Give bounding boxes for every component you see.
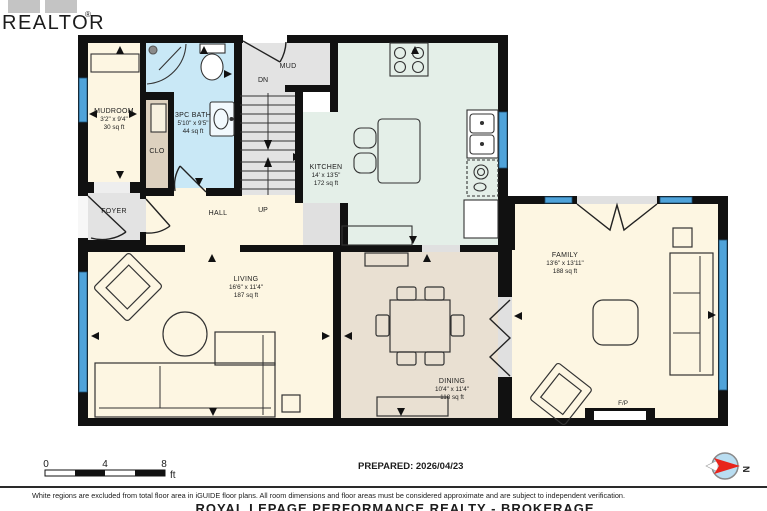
family-dims: 13'6" x 13'11" [546, 260, 584, 267]
family-window-right [719, 240, 727, 390]
kitchen-area: 172 sq ft [314, 180, 338, 187]
family-window-top-left [545, 197, 572, 203]
hall-living-opening [185, 245, 240, 252]
family-area: 188 sq ft [553, 268, 577, 275]
foyer-hall-opening [140, 199, 146, 232]
mudroom-area: 30 sq ft [104, 124, 125, 131]
compass-icon: N [706, 453, 751, 479]
kitchen-label: KITCHEN [310, 164, 343, 171]
bath-label: 3PC BATH [175, 112, 211, 119]
room-family-floor [512, 204, 718, 418]
scale-bar-segment [135, 470, 165, 476]
sink-drain-icon [481, 143, 484, 146]
scale-tick-4: 4 [102, 459, 108, 470]
living-area: 187 sq ft [234, 292, 258, 299]
living-window [79, 272, 87, 392]
compass-north-label: N [741, 466, 751, 473]
dining-dims: 10'4" x 11'4" [435, 386, 469, 393]
refrigerator-symbol [464, 200, 498, 238]
stairs-down-label: DN [258, 77, 268, 84]
family-label: FAMILY [552, 252, 578, 259]
toilet-bowl [201, 54, 223, 80]
brokerage-watermark: ROYAL LEPAGE PERFORMANCE REALTY - BROKER… [195, 501, 594, 511]
shower-head-icon [149, 46, 157, 54]
mudroom-window [79, 78, 87, 122]
closet-label: CLO [149, 148, 165, 155]
room-hall-floor [146, 195, 303, 245]
fireplace-label: F/P [618, 400, 628, 407]
scale-tick-8: 8 [161, 459, 167, 470]
sink-counter [467, 110, 498, 158]
stairs-up-label: UP [258, 207, 268, 214]
scale-bar-segment [75, 470, 105, 476]
footer-divider [0, 486, 767, 488]
fireplace [585, 408, 655, 426]
bath-area: 44 sq ft [183, 128, 204, 135]
kitchen-dims: 14' x 13'5" [312, 172, 341, 179]
registered-mark: ® [85, 10, 91, 19]
bath-door-opening [174, 188, 206, 196]
mud-door-opening [243, 35, 287, 43]
entry-door-opening [78, 196, 88, 238]
kitchen-dining-opening [422, 245, 460, 252]
living-label: LIVING [234, 276, 259, 283]
bath-dims: 5'10" x 9'5" [177, 120, 208, 127]
room-living-floor [88, 252, 333, 418]
living-dims: 16'6" x 11'4" [229, 284, 263, 291]
dining-area: 118 sq ft [440, 394, 464, 401]
stair-landing-floor [303, 203, 340, 245]
scale-tick-0: 0 [43, 459, 49, 470]
room-dining-floor [341, 252, 498, 418]
scale-bar: 0 4 8 ft [43, 459, 176, 481]
mudroom-foyer-opening [94, 182, 130, 193]
scale-unit: ft [170, 470, 176, 481]
foyer-label: FOYER [101, 208, 127, 215]
mudroom-label: MUDROOM [94, 108, 134, 115]
footer-disclaimer: White regions are excluded from total fl… [32, 491, 625, 500]
floorplan-image: REALTOR ® [0, 0, 767, 511]
kitchen-window [499, 112, 507, 168]
closet-door-leaf [151, 104, 166, 132]
dining-label: DINING [439, 378, 465, 385]
family-window-top-right [660, 197, 692, 203]
bath-faucet-icon [230, 118, 233, 121]
realtor-logo: REALTOR ® [2, 0, 105, 34]
mudroom-dims: 3'2" x 9'4" [100, 116, 128, 123]
room-foyer-floor [88, 193, 140, 240]
sink-drain-icon [481, 122, 484, 125]
fireplace-opening [594, 411, 646, 420]
hall-label: HALL [209, 210, 228, 217]
prepared-date: PREPARED: 2026/04/23 [358, 461, 463, 472]
mud-label: MUD [280, 63, 297, 70]
